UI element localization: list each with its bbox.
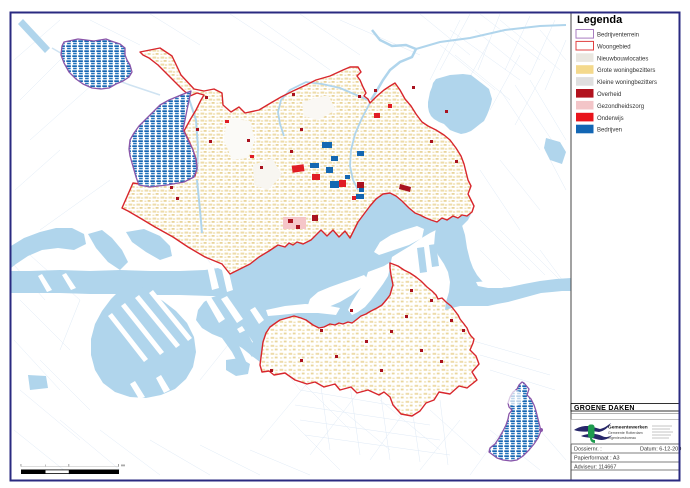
svg-text:Gezondheidszorg: Gezondheidszorg	[597, 104, 644, 110]
svg-text:Ingenieursbureau: Ingenieursbureau	[608, 436, 636, 440]
svg-text:Onderwijs: Onderwijs	[597, 116, 624, 122]
svg-text:GROENE DAKEN: GROENE DAKEN	[574, 405, 635, 412]
svg-text:Dossiernr. :: Dossiernr. :	[574, 447, 602, 453]
svg-text:Grote woningbezitters: Grote woningbezitters	[597, 68, 655, 74]
svg-text:Overheid: Overheid	[597, 92, 621, 98]
svg-text:Legenda: Legenda	[577, 14, 623, 26]
svg-text:Bedrijventerrein: Bedrijventerrein	[597, 33, 639, 39]
svg-text:Gemeentewerken: Gemeentewerken	[608, 425, 648, 431]
svg-text:Woongebied: Woongebied	[597, 44, 631, 50]
svg-text:Papierformaat : A3: Papierformaat : A3	[574, 456, 620, 462]
svg-text:Bedrijven: Bedrijven	[597, 128, 622, 134]
svg-text:Adviseur: 114667: Adviseur: 114667	[574, 465, 616, 471]
svg-text:Kleine woningbezitters: Kleine woningbezitters	[597, 80, 657, 86]
svg-text:Gemeente Rotterdam: Gemeente Rotterdam	[608, 431, 643, 435]
svg-text:Nieuwbouwlocaties: Nieuwbouwlocaties	[597, 56, 648, 62]
svg-text:Datum: 6-12-2005: Datum: 6-12-2005	[640, 447, 684, 453]
